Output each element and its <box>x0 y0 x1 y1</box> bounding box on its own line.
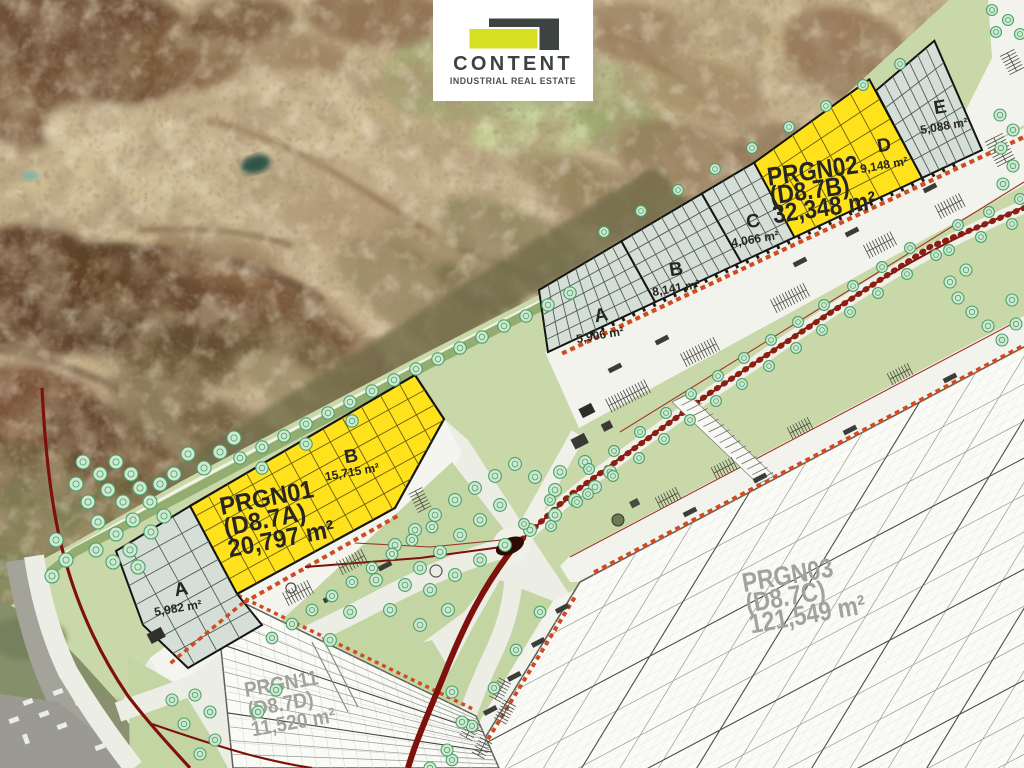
svg-text:CONTENT: CONTENT <box>453 53 573 75</box>
svg-text:INDUSTRIAL REAL ESTATE: INDUSTRIAL REAL ESTATE <box>450 76 576 86</box>
